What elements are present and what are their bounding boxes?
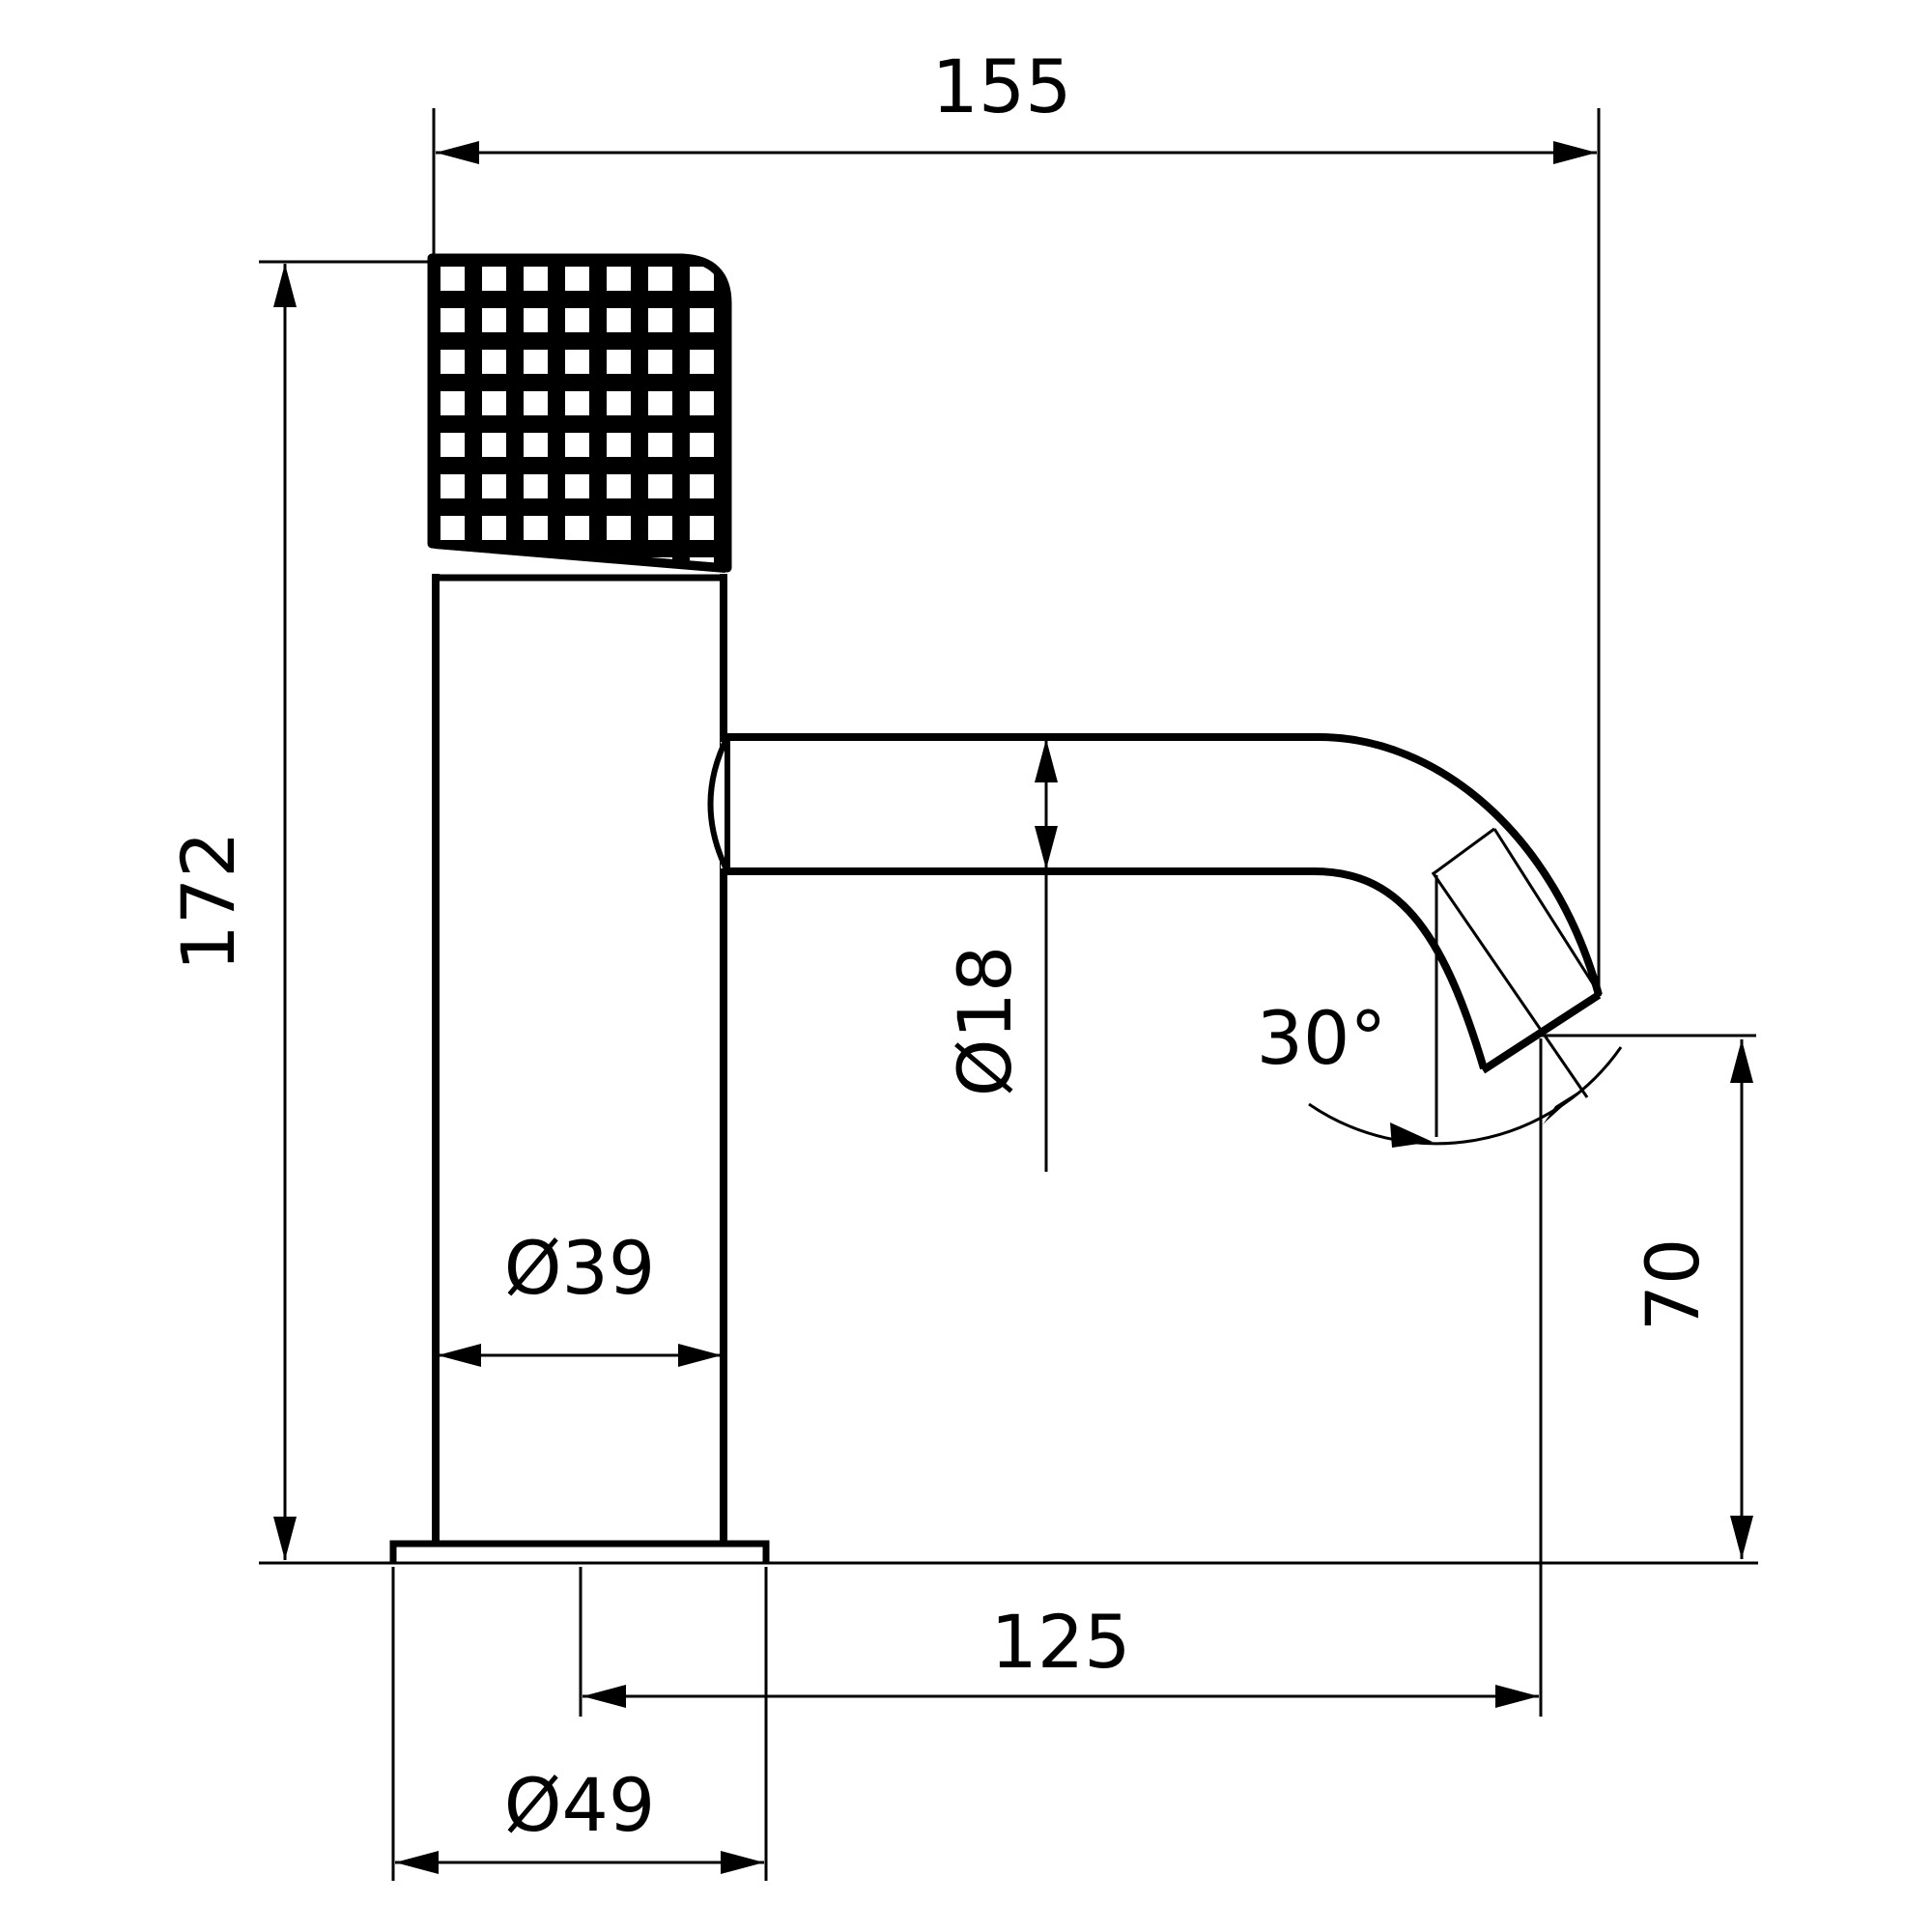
body-fill — [432, 574, 727, 1542]
arrowhead-icon — [395, 1851, 439, 1874]
arrowhead-icon — [273, 1517, 297, 1560]
faucet-dimension-drawing: 155 172 Ø18 30° Ø39 70 — [0, 0, 1932, 1932]
dim-overall-height: 172 — [165, 262, 436, 1560]
dim-label-body-diameter: Ø39 — [504, 1225, 656, 1311]
arrowhead-icon — [1730, 1516, 1753, 1559]
dim-label-spout-diameter: Ø18 — [942, 946, 1028, 1097]
handle-knurl-grid — [432, 258, 727, 568]
faucet-outline — [259, 258, 1758, 1563]
dim-label-spout-angle: 30° — [1257, 995, 1387, 1081]
spout-tube-fill — [721, 742, 1319, 868]
arrowhead-icon — [721, 1851, 764, 1874]
dim-label-outlet-height: 70 — [1630, 1238, 1716, 1332]
base — [259, 1543, 1758, 1563]
faucet-body — [432, 574, 727, 1542]
arrowhead-icon — [273, 264, 297, 307]
dim-label-spout-reach: 125 — [990, 1599, 1130, 1685]
arrowhead-icon — [1553, 141, 1597, 164]
technical-drawing-canvas: 155 172 Ø18 30° Ø39 70 — [0, 0, 1932, 1932]
dim-label-overall-height: 172 — [165, 831, 251, 971]
handle-knurled — [432, 258, 727, 570]
arrowhead-icon — [436, 141, 479, 164]
arrowhead-icon — [582, 1685, 626, 1708]
arrowhead-icon — [1730, 1039, 1753, 1083]
dim-label-overall-depth: 155 — [931, 43, 1071, 129]
spout — [711, 737, 1602, 1097]
dim-label-base-diameter: Ø49 — [504, 1762, 656, 1848]
dim-outlet-height: 70 — [1536, 1036, 1756, 1559]
arrowhead-icon — [1495, 1685, 1539, 1708]
